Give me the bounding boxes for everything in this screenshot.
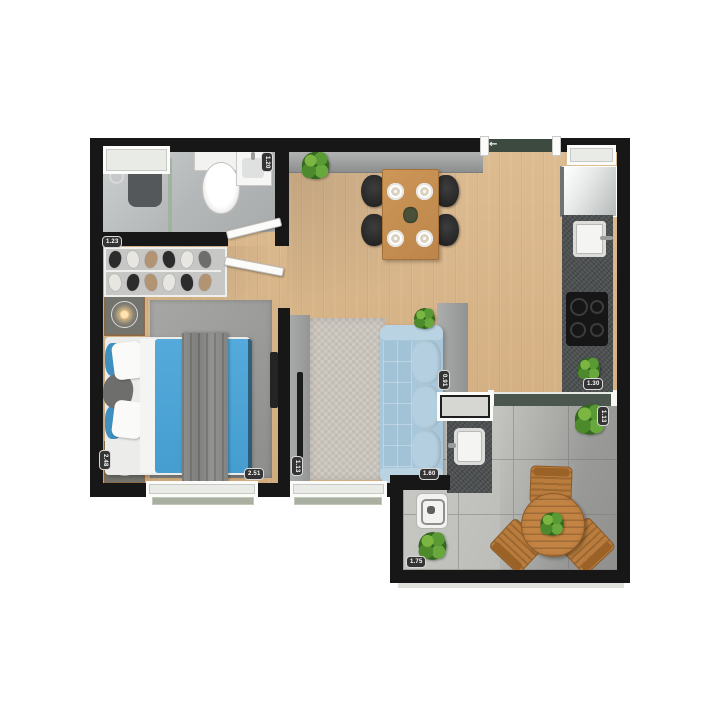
wall-bathroom-right: [275, 150, 289, 246]
shoe: [180, 250, 195, 269]
shoe: [126, 250, 140, 269]
bedroom-window: [146, 481, 258, 497]
lamp: [111, 301, 138, 328]
table-plant: [538, 510, 566, 538]
nightstand-top: [106, 295, 143, 334]
bathroom-window: [103, 146, 170, 174]
bedroom-tv: [270, 352, 278, 408]
dim-badge-bath-sink: 1.20: [261, 152, 273, 172]
plate: [387, 183, 404, 200]
shoe: [143, 273, 158, 292]
burner: [570, 322, 586, 338]
dim-badge-bedroom-front: 2.51: [244, 468, 264, 480]
shoe: [125, 273, 140, 292]
living-rug: [310, 318, 385, 480]
shoe-rack: [104, 247, 227, 297]
burner: [590, 323, 604, 337]
double-bed: [105, 337, 250, 475]
wall-left: [90, 138, 103, 497]
balcony-outer-sill: [398, 583, 624, 588]
dim-badge-divider: 0.91: [438, 370, 450, 390]
dim-badge-living-side: 1.13: [291, 456, 303, 476]
vanity-faucet: [251, 152, 255, 160]
shoe: [108, 250, 123, 269]
bedroom-window-sill: [152, 497, 254, 505]
shoe: [197, 250, 212, 269]
shoe: [198, 273, 213, 292]
kitchen-faucet: [600, 236, 613, 240]
wall-right: [617, 138, 630, 583]
dim-badge-balcony-side: 1.13: [597, 406, 609, 426]
dim-badge-sofa-front: 1.60: [419, 468, 439, 480]
wall-bedroom-right: [278, 308, 290, 483]
chair-backrest: [533, 467, 569, 476]
shoe: [143, 250, 158, 269]
laundry-faucet: [448, 443, 456, 448]
sofa-armrest-top: [380, 325, 443, 340]
kitchen-window: [567, 145, 616, 165]
floor-plan: ← 1.23 1.20 2.48 2.51 1.13 1.60 0.91 1.3…: [0, 0, 720, 720]
dim-badge-bathroom: 1.23: [102, 236, 122, 248]
burner: [590, 300, 604, 314]
plate: [416, 183, 433, 200]
living-window-sill: [294, 497, 382, 505]
entry-door-frame-right: [552, 136, 561, 156]
shoe: [108, 273, 123, 292]
shoe-rack-shelf: [106, 270, 221, 272]
plate: [387, 230, 404, 247]
entry-door-frame-left: [480, 136, 489, 156]
dim-badge-bedroom-side: 2.48: [99, 450, 111, 470]
dining-table: [382, 169, 439, 260]
service-pass-window: [437, 392, 493, 421]
bed-throw-blanket: [182, 333, 228, 481]
shoe: [162, 273, 176, 292]
fridge: [560, 166, 617, 217]
plate: [416, 230, 433, 247]
laundry-sink: [454, 428, 485, 465]
table-centerpiece-plant: [403, 206, 418, 224]
entry-arrow-icon: ←: [489, 138, 497, 151]
wall-balcony-left: [390, 475, 403, 583]
floor-drain-center: [427, 506, 435, 514]
living-window: [290, 481, 387, 497]
dim-badge-kitchen: 1.30: [583, 378, 603, 390]
sofa-corner-plant: [412, 306, 437, 331]
sofa: [380, 325, 443, 483]
dim-badge-balcony-front: 1.75: [406, 556, 426, 568]
shoe: [180, 273, 195, 292]
wall-balcony-bottom: [390, 570, 630, 583]
toilet-bowl: [202, 162, 240, 214]
sofa-back-cushion: [412, 430, 441, 470]
burner: [570, 298, 588, 316]
sideboard-plant: [299, 149, 332, 182]
living-tv: [297, 372, 303, 458]
cooktop: [566, 292, 608, 346]
shoe: [162, 250, 177, 269]
sofa-back-cushion: [412, 340, 441, 384]
sofa-seat: [383, 341, 412, 467]
